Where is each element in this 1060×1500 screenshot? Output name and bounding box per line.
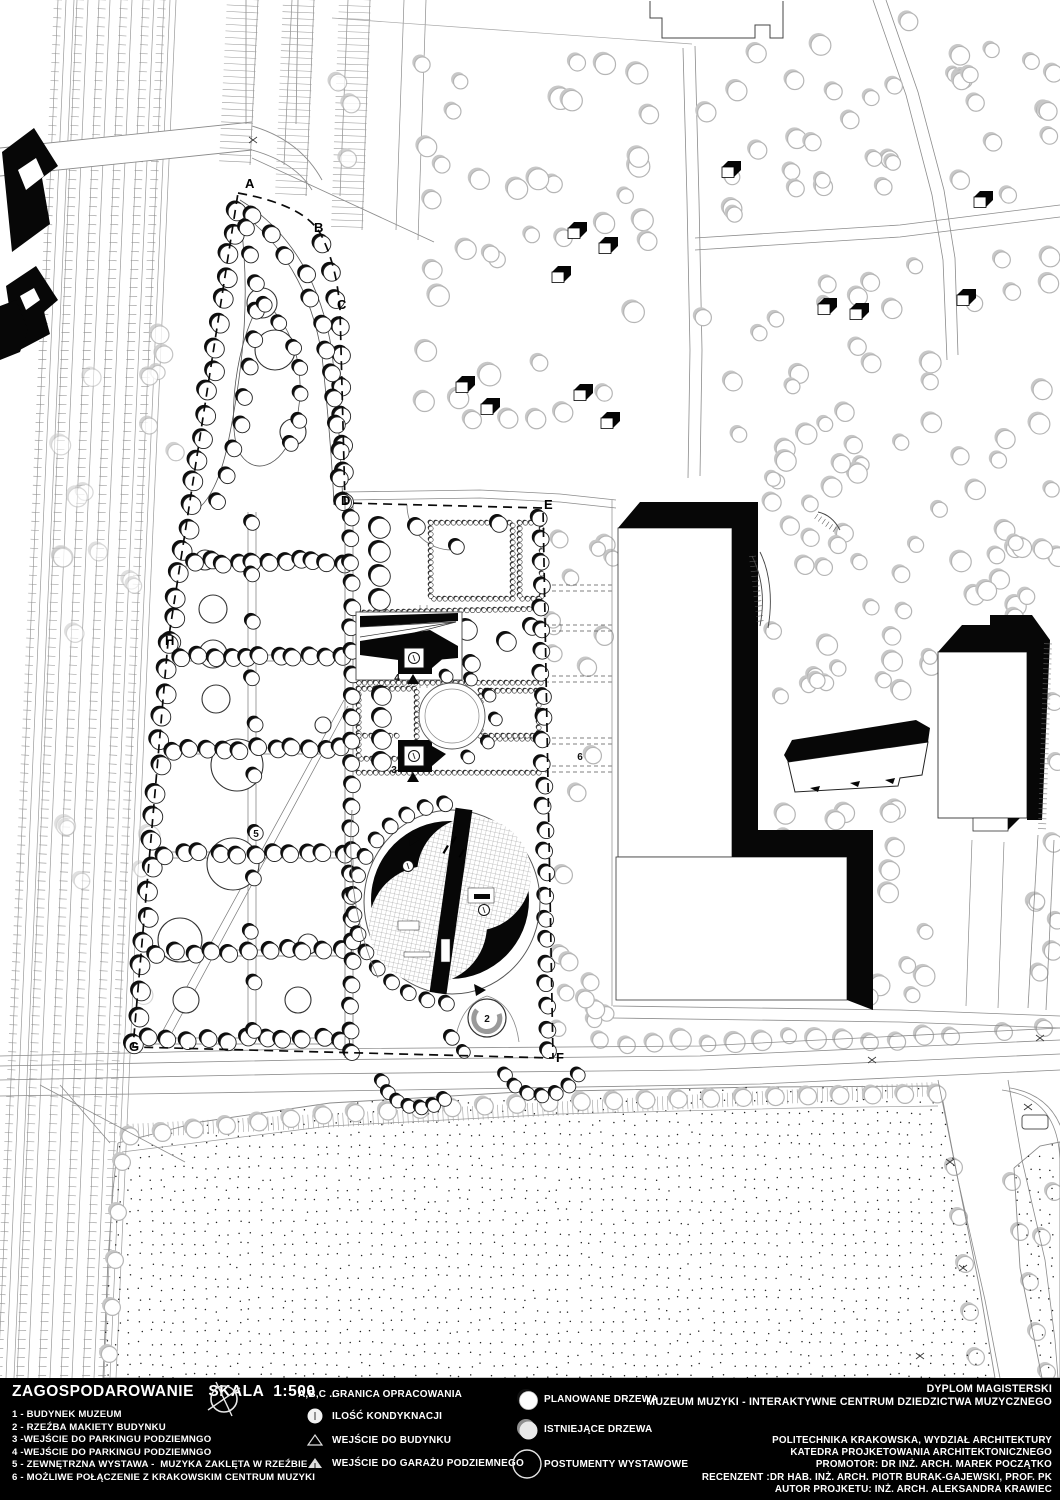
legend-label: WEJŚCIE DO GARAŻU PODZIEMNEGO — [332, 1458, 524, 1469]
legend-label: ILOŚĆ KONDYKNACJI — [332, 1411, 442, 1422]
legend-item: 2 - RZEŹBA MAKIETY BUDYNKU — [12, 1422, 315, 1435]
project-type: DYPLOM MAGISTERSKI — [646, 1383, 1052, 1396]
site-plan-sheet: ABCDEFGH43562 ZAGOSPODAROWANIE SKALA 1:5… — [0, 0, 1060, 1500]
pedestal-icon — [510, 1447, 544, 1481]
building-entrance-icon — [298, 1432, 332, 1448]
svg-text:A: A — [245, 176, 255, 191]
site-plan-map: ABCDEFGH43562 — [0, 0, 1060, 1500]
svg-text:3: 3 — [391, 765, 397, 776]
svg-text:4: 4 — [394, 673, 400, 684]
legend-label: ISTNIEJĄCE DRZEWA — [544, 1424, 652, 1435]
svg-text:E: E — [544, 497, 553, 512]
svg-text:H: H — [165, 633, 174, 648]
existing-tree-icon — [510, 1417, 544, 1441]
legend-item: 4 -WEJŚCIE DO PARKINGU PODZIEMNGO — [12, 1447, 315, 1460]
garage-entrance-icon — [298, 1455, 332, 1471]
legend-item: 3 -WEJŚCIE DO PARKINGU PODZIEMNGO — [12, 1434, 315, 1447]
legend-row-storeys: ILOŚĆ KONDYKNACJI — [298, 1407, 524, 1425]
credit-line: POLITECHNIKA KRAKOWSKA, WYDZIAŁ ARCHITEK… — [646, 1435, 1052, 1447]
svg-text:F: F — [556, 1050, 564, 1065]
credit-line: AUTOR PROJKETU: INŻ. ARCH. ALEKSANDRA KR… — [646, 1484, 1052, 1496]
svg-text:D: D — [341, 493, 350, 508]
svg-text:6: 6 — [577, 752, 583, 763]
legend-label: WEJŚCIE DO BUDYNKU — [332, 1435, 451, 1446]
svg-text:G: G — [129, 1039, 139, 1054]
legend-label: GRANICA OPRACOWANIA — [332, 1389, 462, 1400]
plan-title: ZAGOSPODAROWANIE SKALA 1:500 — [12, 1383, 315, 1401]
title-block: DYPLOM MAGISTERSKI MUZEUM MUZYKI - INTER… — [646, 1383, 1052, 1496]
svg-text:C: C — [337, 297, 347, 312]
legend-numbered-list: 1 - BUDYNEK MUZEUM2 - RZEŹBA MAKIETY BUD… — [12, 1409, 315, 1485]
legend-item: 5 - ZEWNĘTRZNA WYSTAWA - MUZYKA ZAKLĘTA … — [12, 1459, 315, 1472]
svg-text:5: 5 — [253, 829, 259, 840]
legend-label: PLANOWANE DRZEWA — [544, 1394, 658, 1405]
legend-bar: ZAGOSPODAROWANIE SKALA 1:500 1 - BUDYNEK… — [0, 1378, 1060, 1500]
storey-count-icon — [298, 1407, 332, 1425]
project-title: MUZEUM MUZYKI - INTERAKTYWNE CENTRUM DZI… — [646, 1396, 1052, 1409]
legend-row-garage-entry: WEJŚCIE DO GARAŻU PODZIEMNEGO — [298, 1455, 524, 1471]
planned-tree-icon — [510, 1387, 544, 1411]
legend-symbols: A,B,C .. GRANICA OPRACOWANIA ILOŚĆ KONDY… — [298, 1389, 524, 1478]
credit-line: KATEDRA PROJKETOWANIA ARCHITEKTONICZNEGO — [646, 1447, 1052, 1459]
legend-item: 6 - MOŻLIWE POŁĄCZENIE Z KRAKOWSKIM CENT… — [12, 1472, 315, 1485]
legend-row-boundary: A,B,C .. GRANICA OPRACOWANIA — [298, 1389, 524, 1400]
svg-text:2: 2 — [484, 1014, 490, 1025]
credit-line: PROMOTOR: DR INŻ. ARCH. MAREK POCZĄTKO — [646, 1459, 1052, 1471]
svg-text:B: B — [314, 220, 323, 235]
boundary-letters-icon: A,B,C .. — [298, 1389, 332, 1400]
credit-line: RECENZENT :DR HAB. INŻ. ARCH. PIOTR BURA… — [646, 1472, 1052, 1484]
legend-row-building-entry: WEJŚCIE DO BUDYNKU — [298, 1432, 524, 1448]
legend-item: 1 - BUDYNEK MUZEUM — [12, 1409, 315, 1422]
